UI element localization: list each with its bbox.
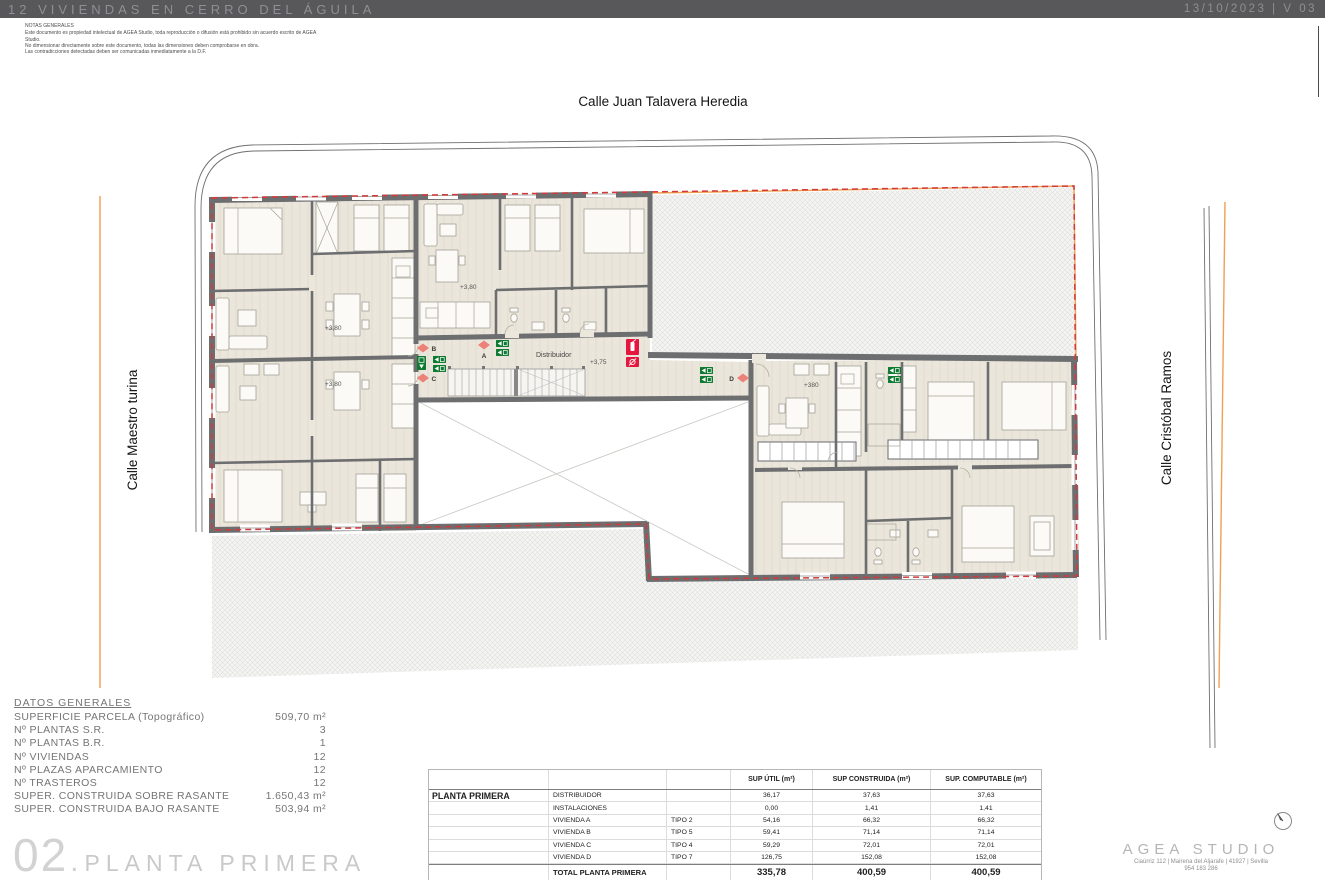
table-total-row: TOTAL PLANTA PRIMERA 335,78 400,59 400,5…	[429, 864, 1041, 880]
neighbor-hatch-top	[652, 187, 1076, 357]
level-label: +3,80	[325, 381, 342, 388]
window	[902, 572, 932, 579]
drawing-sheet: 12 VIVIENDAS EN CERRO DEL ÁGUILA 13/10/2…	[0, 0, 1325, 880]
table-row: INSTALACIONES 0,00 1,41 1,41	[429, 802, 1041, 814]
table-row: VIVIENDA A TIPO 2 54,16 66,32 66,32	[429, 815, 1041, 827]
studio-block: AGEA STUDIO Ciaúrriz 112 | Mairena del A…	[1081, 841, 1321, 873]
datos-row: Nº PLANTAS B.R.1	[14, 737, 326, 750]
parcel-line-right	[1219, 202, 1225, 688]
datos-row: SUPERFICIE PARCELA (Topográfico)509,70 m…	[14, 711, 326, 724]
window	[1006, 572, 1036, 579]
north-arrow-icon	[1275, 813, 1292, 830]
exit-sign-icon	[700, 376, 713, 383]
street-left-label: Calle Maestro turina	[125, 369, 140, 490]
exit-sign-icon	[433, 365, 446, 372]
exit-sign-icon	[496, 349, 509, 356]
window	[296, 194, 326, 201]
col-header: SUP CONSTRUIDA (m²)	[813, 770, 931, 789]
datos-title: DATOS GENERALES	[14, 697, 326, 709]
table-row: VIVIENDA D TIPO 7 126,75 152,08 152,08	[429, 852, 1041, 864]
marker-a-label: A	[482, 353, 487, 360]
marker-d-label: D	[729, 376, 734, 383]
sheet-title: 02 . PLANTA PRIMERA	[13, 832, 366, 879]
marker-c-label: C	[432, 376, 437, 383]
surfaces-table: SUP ÚTIL (m²) SUP CONSTRUIDA (m²) SUP. C…	[428, 769, 1042, 880]
sheet-number: 02	[13, 832, 68, 878]
col-header: SUP. COMPUTABLE (m²)	[931, 770, 1041, 789]
datos-row: Nº TRASTEROS12	[14, 777, 326, 790]
datos-row: Nº PLAZAS APARCAMIENTO12	[14, 764, 326, 777]
fire-hose-icon	[626, 357, 639, 367]
level-label: +3,80	[460, 284, 477, 291]
datos-row: SUPER. CONSTRUIDA SOBRE RASANTE1.650,43 …	[14, 790, 326, 803]
exit-sign-icon	[888, 367, 901, 374]
exit-sign-icon	[700, 367, 713, 374]
studio-address: Ciaúrriz 112 | Mairena del Aljarafe | 41…	[1081, 859, 1321, 866]
sheet-name: PLANTA PRIMERA	[85, 850, 367, 877]
studio-phone: 954 183 286	[1081, 866, 1321, 873]
table-row: VIVIENDA C TIPO 4 59,29 72,01 72,01	[429, 840, 1041, 852]
studio-name: AGEA STUDIO	[1081, 841, 1321, 858]
exit-sign-icon	[417, 356, 426, 370]
level-label: +380	[804, 382, 819, 389]
level-label: +3,75	[590, 359, 607, 366]
window	[586, 191, 616, 198]
table-row: VIVIENDA B TIPO 5 59,41 71,14 71,14	[429, 827, 1041, 839]
exit-sign-icon	[496, 340, 509, 347]
street-right-label: Calle Cristóbal Ramos	[1159, 351, 1174, 486]
col-header: SUP ÚTIL (m²)	[731, 770, 813, 789]
table-header-row: SUP ÚTIL (m²) SUP CONSTRUIDA (m²) SUP. C…	[429, 770, 1041, 790]
window	[209, 306, 216, 336]
fire-extinguisher-icon	[626, 339, 639, 355]
datos-generales: DATOS GENERALES SUPERFICIE PARCELA (Topo…	[14, 697, 326, 817]
datos-row: SUPER. CONSTRUIDA BAJO RASANTE503,94 m²	[14, 803, 326, 816]
datos-row: Nº PLANTAS S.R.3	[14, 724, 326, 737]
table-row: PLANTA PRIMERA DISTRIBUIDOR 36,17 37,63 …	[429, 790, 1041, 802]
corridor-label: Distribuidor	[536, 352, 572, 359]
window	[506, 192, 536, 199]
street-top-label: Calle Juan Talavera Heredia	[578, 94, 748, 109]
section-label: PLANTA PRIMERA	[429, 790, 549, 801]
marker-b-label: B	[432, 346, 437, 353]
window	[1072, 455, 1079, 485]
stairs	[448, 366, 585, 396]
right-street-curb2	[1209, 206, 1215, 748]
window	[332, 524, 362, 531]
window	[240, 525, 270, 532]
datos-row: Nº VIVIENDAS12	[14, 751, 326, 764]
sheet-separator: .	[70, 845, 78, 879]
exit-sign-icon	[433, 356, 446, 363]
level-label: +3,80	[325, 325, 342, 332]
exit-sign-icon	[888, 376, 901, 383]
right-street-curb	[1204, 208, 1210, 748]
